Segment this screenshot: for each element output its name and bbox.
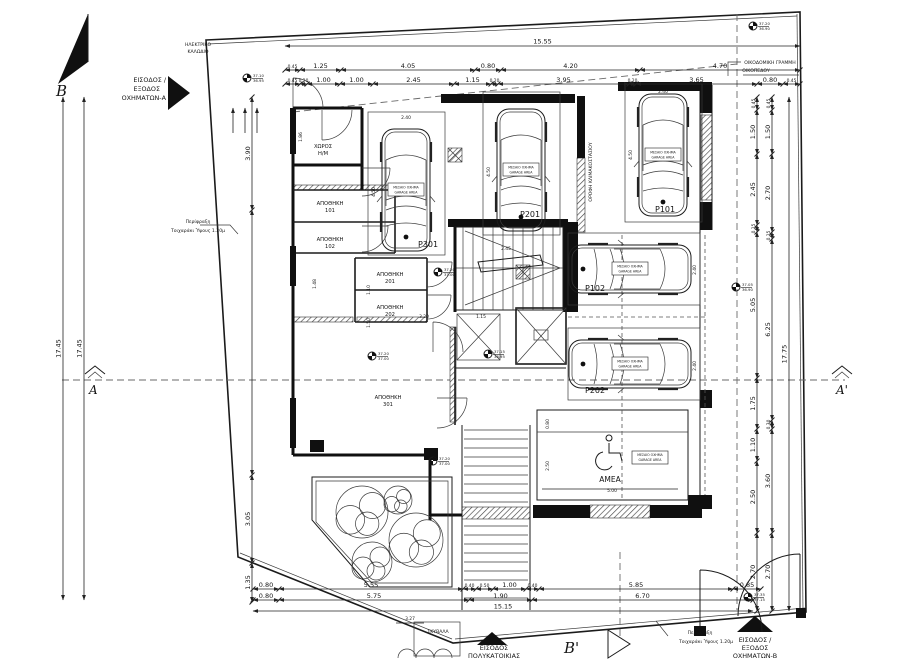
interior-dim-label: 4.50 [628, 150, 634, 160]
spot-elevation-marker: 37.2037.00 [434, 267, 455, 277]
interior-dim-label: 2.40 [658, 89, 668, 95]
car-tag-line2: GARAGE AREA [619, 365, 643, 369]
room-label: ΑΠΟΘΗΚΗ [377, 272, 404, 278]
car-tag-line1: ΜΕΣΑΙΟ ΟΧΗΜΑ [508, 166, 534, 170]
dim-label: 0.20 [299, 78, 309, 84]
dim-label: 2.70 [764, 565, 772, 579]
amea-spot-label: ΑΜΕΑ [599, 475, 621, 484]
dim-label: 5.75 [367, 592, 381, 600]
dim-label: 1.10 [749, 438, 757, 452]
dim-label: 0.25 [751, 223, 757, 233]
car-tag-line2: GARAGE AREA [510, 171, 534, 175]
dim-label: 0.40 [465, 583, 475, 589]
dim-label: 5.55 [364, 581, 378, 589]
dim-total-label: 17.45 [55, 339, 63, 358]
dim-label: 2.70 [764, 186, 772, 200]
dim-label: 2.50 [749, 490, 757, 504]
car-tag-line2: GARAGE AREA [395, 191, 419, 195]
car-tag: ΜΕΣΑΙΟ ΟΧΗΜΑGARAGE AREA [645, 148, 681, 161]
fence-note-left-line2: Τοιχαράκι Ύψους 1.20μ [170, 227, 225, 234]
amea-tag-line2: GARAGE AREA [639, 458, 663, 462]
dim-label: 1.15 [465, 76, 479, 84]
dim-label: 6.70 [635, 592, 649, 600]
vehicle-entrance-a-line2: ΕΞΟΔΟΣ [133, 85, 160, 93]
car-tag-line1: ΜΕΣΑΙΟ ΟΧΗΜΑ [393, 186, 419, 190]
vehicle-entrance-a-line3: ΟΧΗΜΑΤΩΝ-Α [122, 94, 167, 102]
fence-note-bottom-line2: Τοιχαράκι Ύψους 1.20μ [678, 638, 733, 645]
dim-label: 4.70 [713, 62, 727, 70]
interior-dim-label: 3.20 [419, 314, 429, 320]
interior-dim-label: 4.50 [371, 187, 377, 197]
dim-label: 0.80 [259, 581, 273, 589]
interior-dim-label: 2.40 [692, 265, 698, 275]
room-number: 102 [325, 244, 335, 250]
spot-elevation-marker: 37.3537.15 [744, 592, 765, 602]
room-number: Η/Μ [318, 151, 328, 157]
section-b-prime-label: Β' [563, 639, 579, 657]
dim-label: 1.00 [349, 76, 363, 84]
dim-label: 0.40 [528, 583, 538, 589]
parking-spot-id: P102 [585, 284, 605, 293]
room-label: ΑΠΟΘΗΚΗ [377, 305, 404, 311]
room-label: ΧΩΡΟΣ [314, 144, 332, 150]
parking-bays: ΜΕΣΑΙΟ ΟΧΗΜΑGARAGE AREAΜΕΣΑΙΟ ΟΧΗΜΑGARAG… [368, 84, 705, 500]
section-a-prime-label: A' [835, 383, 848, 397]
building-entrance-line1: ΕΙΣΟΔΟΣ [480, 644, 508, 652]
dim-label: 1.75 [749, 396, 757, 410]
garbage-room-label: ΣΚΥΒΑΛΑ [427, 629, 449, 635]
spot-elevation-marker: 37.1036.95 [243, 73, 264, 83]
interior-dim-label: 2.50 [545, 461, 551, 471]
interior-dim-label: 2.45 [501, 246, 511, 252]
dim-label: 1.35 [244, 575, 252, 589]
dim-label: 3.90 [244, 146, 252, 160]
room-number: 202 [385, 312, 395, 318]
car-tag: ΜΕΣΑΙΟ ΟΧΗΜΑGARAGE AREA [612, 262, 648, 275]
dim-label: 3.60 [764, 474, 772, 488]
building-line-note-line2: ΟΙΚΟΠΕΔΟΥ [742, 68, 770, 74]
vehicle-entrance-a-line1: ΕΙΣΟΔΟΣ / [133, 76, 166, 84]
interior-dim-label: 4.50 [486, 167, 492, 177]
room-label: ΑΠΟΘΗΚΗ [317, 237, 344, 243]
dim-label: 2.45 [406, 76, 420, 84]
dim-label: 0.25 [766, 230, 772, 240]
cable-note-line1: ΗΛΕΚΤΡΙΚΟ [185, 42, 211, 48]
floor-plan: ΜΕΣΑΙΟ ΟΧΗΜΑGARAGE AREAΜΕΣΑΙΟ ΟΧΗΜΑGARAG… [0, 0, 900, 659]
dim-label: 0.20 [628, 78, 638, 84]
dim-label: 0.45 [766, 98, 772, 108]
room-number: 301 [383, 402, 393, 408]
dim-label: 0.85 [740, 581, 754, 589]
building-walls [290, 78, 806, 636]
dim-label: 5.05 [749, 298, 757, 312]
dimension-chains: 0.451.254.050.804.204.700.450.201.001.00… [55, 38, 803, 624]
car-tag: ΜΕΣΑΙΟ ΟΧΗΜΑGARAGE AREA [388, 183, 424, 196]
north-marker-label: B [55, 82, 67, 100]
amea-tag-line1: ΜΕΣΑΙΟ ΟΧΗΜΑ [637, 453, 663, 457]
dim-label: 1.00 [316, 76, 330, 84]
car-tag-line2: GARAGE AREA [652, 156, 676, 160]
spot-elevation-marker: 37.0536.90 [732, 282, 753, 292]
room-label: ΑΠΟΘΗΚΗ [317, 201, 344, 207]
car-tag: ΜΕΣΑΙΟ ΟΧΗΜΑGARAGE AREA [503, 163, 539, 176]
wheelchair-icon [596, 435, 622, 470]
interior-dim-label: 2.40 [516, 97, 526, 103]
dim-label: 2.70 [749, 565, 757, 579]
dim-label: 0.80 [481, 62, 495, 70]
dim-label: 0.50 [480, 583, 490, 589]
interior-dim-label: 1.15 [476, 314, 486, 320]
car-tag-line2: GARAGE AREA [619, 270, 643, 274]
stair-roof-note: ΟΡΟΦΗ ΚΛΙΜΑΚΟΣΤΑΣΙΟΥ [588, 142, 594, 202]
vehicle-entrance-b-line3: ΟΧΗΜΑΤΩΝ-Β [733, 652, 777, 659]
dim-label: 0.45 [288, 64, 298, 70]
room-number: 201 [385, 279, 395, 285]
dim-label: 4.20 [563, 62, 577, 70]
dim-total-label: 17.75 [781, 345, 789, 364]
dim-label: 1.00 [502, 581, 516, 589]
car-tag-line1: ΜΕΣΑΙΟ ΟΧΗΜΑ [650, 151, 676, 155]
interior-dim-label: 1.50 [366, 318, 372, 328]
cable-note-line2: ΚΑΛΩΔΙΟ [188, 49, 209, 55]
interior-dim-label: 2.40 [692, 361, 698, 371]
car-tag-line1: ΜΕΣΑΙΟ ΟΧΗΜΑ [617, 360, 643, 364]
room-number: 101 [325, 208, 335, 214]
spot-elevation-marker: 37.1536.95 [484, 349, 505, 359]
dim-label: 0.80 [259, 592, 273, 600]
car-top-view: ΜΕΣΑΙΟ ΟΧΗΜΑGARAGE AREA [569, 335, 691, 393]
vehicle-entrance-b-line2: ΕΞΟΔΟΣ [742, 644, 769, 652]
dim-label: 0.30 [766, 419, 772, 429]
spot-elevation-marker: 37.2037.00 [368, 351, 389, 361]
dim-total-label: 15.15 [494, 603, 513, 611]
fence-note-left-line1: Περίφραξη [186, 218, 211, 225]
interior-dim-label: 1.10 [366, 285, 372, 295]
dim-label: 6.25 [764, 322, 772, 336]
room-label: ΑΠΟΘΗΚΗ [375, 395, 402, 401]
dim-total-label: 17.45 [76, 339, 84, 358]
car-top-view: ΜΕΣΑΙΟ ΟΧΗΜΑGARAGE AREA [377, 129, 435, 251]
floor-plan-page: ΜΕΣΑΙΟ ΟΧΗΜΑGARAGE AREAΜΕΣΑΙΟ ΟΧΗΜΑGARAG… [0, 0, 900, 659]
building-line-note-line1: ΟΙΚΟΔΟΜΙΚΗ ΓΡΑΜΜΗ [744, 60, 795, 66]
interior-dim-label: 0.80 [545, 419, 551, 429]
interior-dim-label: 1.86 [298, 132, 304, 142]
dim-label: 5.85 [629, 581, 643, 589]
dim-label: 1.50 [764, 125, 772, 139]
dim-label: 0.20 [490, 78, 500, 84]
spot-elevation-marker: 37.2036.90 [749, 21, 770, 31]
fence-note-bottom-line1: Περίφραξη [688, 629, 713, 636]
dim-label: 0.45 [288, 78, 298, 84]
car-top-view: ΜΕΣΑΙΟ ΟΧΗΜΑGARAGE AREA [634, 94, 692, 216]
dim-label: 2.45 [749, 182, 757, 196]
building-entrance-line2: ΠΟΛΥΚΑΤΟΙΚΙΑΣ [468, 652, 520, 659]
parking-spot-id: P202 [585, 386, 605, 395]
dim-label: 3.95 [556, 76, 570, 84]
dim-label: 0.45 [787, 78, 797, 84]
parking-spot-id: P301 [418, 240, 438, 249]
interior-dim-label: 3.27 [405, 616, 415, 622]
dim-label: 3.65 [689, 76, 703, 84]
vehicle-entrance-b-line1: ΕΙΣΟΔΟΣ / [739, 636, 772, 644]
interior-dim-label: 2.40 [401, 115, 411, 121]
dim-label: 0.80 [763, 76, 777, 84]
parking-spot-id: P101 [655, 205, 675, 214]
spot-elevation-marker: 37.2037.00 [429, 456, 450, 466]
dim-label: 0.45 [751, 98, 757, 108]
dim-total-label: 15.55 [533, 38, 552, 46]
dim-label: 4.05 [401, 62, 415, 70]
dim-label: 1.50 [749, 125, 757, 139]
car-tag: ΜΕΣΑΙΟ ΟΧΗΜΑGARAGE AREA [612, 357, 648, 370]
dim-label: 1.25 [313, 62, 327, 70]
dim-label: 1.90 [493, 592, 507, 600]
section-a-label: A [88, 383, 98, 397]
parking-spot-id: P201 [520, 210, 540, 219]
dim-label: 3.05 [244, 512, 252, 526]
interior-dim-label: 1.48 [312, 279, 318, 289]
car-tag-line1: ΜΕΣΑΙΟ ΟΧΗΜΑ [617, 265, 643, 269]
